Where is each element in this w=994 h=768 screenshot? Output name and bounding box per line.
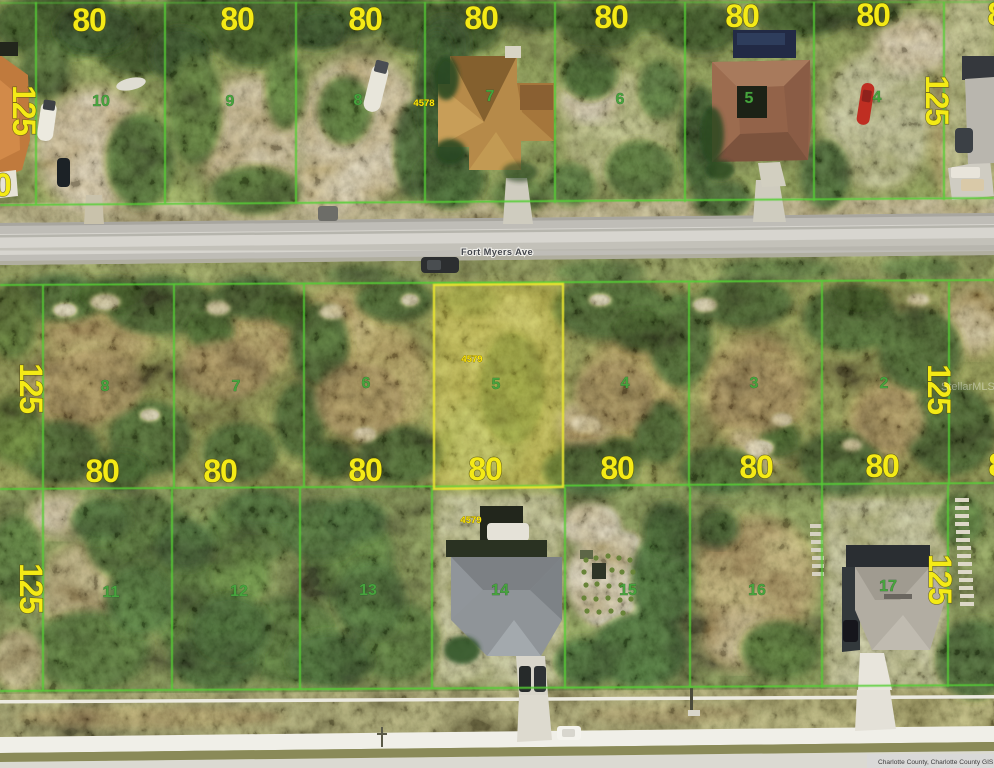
svg-text:3: 3 [750,375,759,392]
svg-text:14: 14 [491,582,509,599]
svg-text:125: 125 [922,554,958,604]
svg-text:80: 80 [464,0,498,36]
svg-text:125: 125 [6,85,42,135]
svg-text:6: 6 [362,375,371,392]
svg-text:80: 80 [739,449,773,485]
svg-text:16: 16 [748,582,766,599]
svg-text:5: 5 [745,90,754,107]
svg-text:80: 80 [987,0,994,32]
svg-text:7: 7 [232,378,241,395]
svg-text:125: 125 [13,563,49,613]
svg-text:12: 12 [230,583,248,600]
svg-text:4: 4 [621,375,630,392]
svg-text:13: 13 [359,582,377,599]
svg-text:10: 10 [92,93,110,110]
svg-text:2: 2 [880,375,889,392]
svg-text:80: 80 [0,167,11,203]
svg-text:125: 125 [13,363,49,413]
svg-text:4579: 4579 [461,354,482,365]
svg-text:Charlotte County, Charlotte Co: Charlotte County, Charlotte County GIS [878,759,994,766]
svg-text:StellarMLS: StellarMLS [941,381,994,393]
svg-text:80: 80 [725,0,759,34]
svg-text:17: 17 [879,578,897,595]
svg-text:80: 80 [348,452,382,488]
svg-text:80: 80 [348,1,382,37]
svg-text:80: 80 [600,450,634,486]
svg-text:5: 5 [492,376,501,393]
svg-text:8: 8 [354,92,363,109]
svg-text:Fort Myers Ave: Fort Myers Ave [461,247,533,257]
svg-text:80: 80 [72,2,106,38]
svg-text:4: 4 [873,89,882,106]
svg-text:11: 11 [103,584,120,601]
svg-text:9: 9 [226,93,235,110]
svg-text:6: 6 [616,91,625,108]
svg-text:80: 80 [85,453,119,489]
svg-text:8: 8 [101,378,110,395]
svg-text:125: 125 [919,75,955,125]
svg-text:4578: 4578 [413,98,434,109]
svg-text:7: 7 [486,88,495,105]
svg-text:15: 15 [619,582,637,599]
svg-text:80: 80 [203,453,237,489]
svg-text:80: 80 [220,1,254,37]
svg-text:80: 80 [988,447,994,483]
svg-text:4579: 4579 [460,515,481,526]
svg-text:80: 80 [865,448,899,484]
svg-text:80: 80 [594,0,628,35]
svg-text:80: 80 [856,0,890,33]
svg-text:80: 80 [468,451,502,487]
